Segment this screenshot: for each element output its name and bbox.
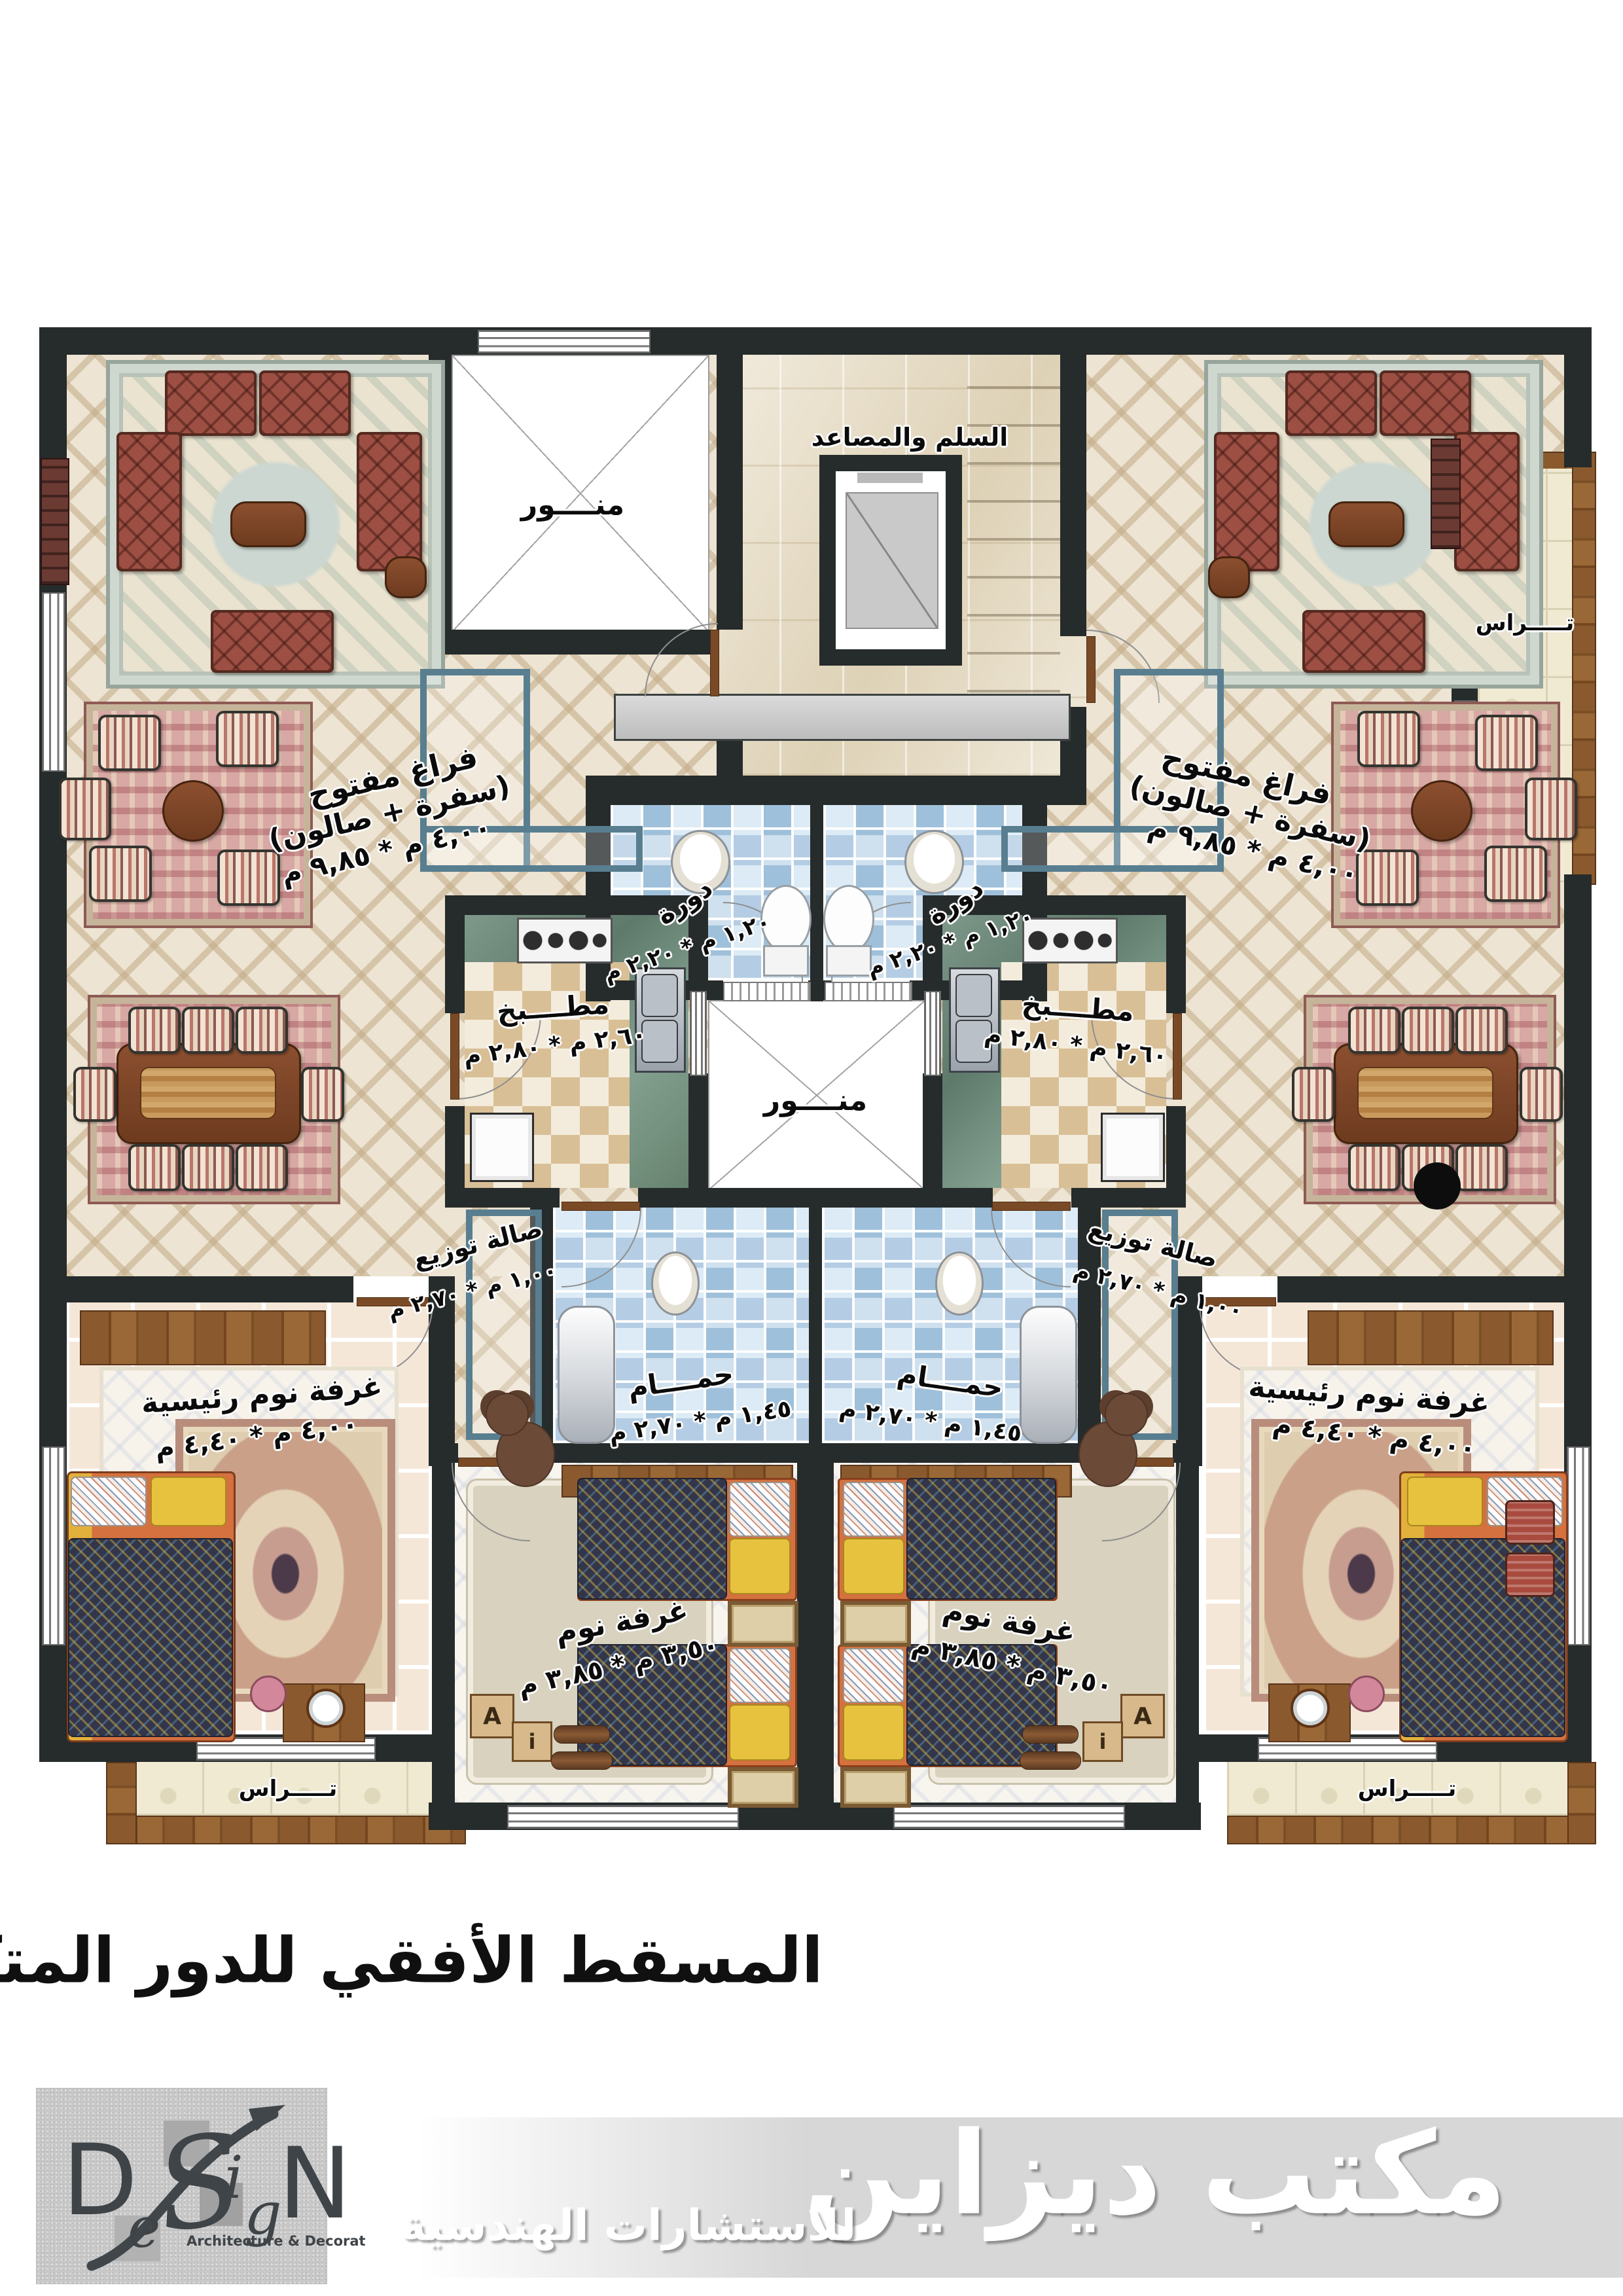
dining-chair xyxy=(301,1067,344,1122)
dining-chair xyxy=(182,1007,234,1054)
sofa xyxy=(211,610,334,673)
nightstand xyxy=(728,1767,798,1808)
terrace-bottom-left-wood-edge xyxy=(106,1762,137,1844)
sofa xyxy=(1214,432,1279,571)
wall-under-lightwell xyxy=(708,1188,923,1208)
side-table xyxy=(385,556,427,598)
door-leaf-entry-left xyxy=(710,630,719,696)
armchair xyxy=(89,846,152,902)
door-leaf-bath-right xyxy=(992,1202,1071,1211)
terrace-bottom-left-wood xyxy=(106,1816,466,1844)
quilt xyxy=(68,1538,233,1737)
wall-top xyxy=(39,327,1592,355)
label-terrace-bottom-right: تـــــراس xyxy=(1358,1778,1457,1800)
door-leaf-kitchen-right xyxy=(1173,1013,1182,1100)
wall-bath-divider xyxy=(809,1208,822,1445)
dining-chair xyxy=(128,1007,181,1054)
terrace-bottom-right-wood xyxy=(1227,1816,1596,1844)
dining-chair xyxy=(1455,1007,1508,1054)
terrace-bottom-right-wood-edge xyxy=(1567,1762,1596,1844)
wall-masterR-top xyxy=(1277,1276,1565,1302)
dining-chair xyxy=(1292,1067,1335,1122)
sofa xyxy=(116,432,182,571)
window-masterR-right xyxy=(1567,1446,1590,1645)
round-table xyxy=(162,780,224,842)
toy-block: i xyxy=(1082,1721,1123,1762)
dining-chair xyxy=(236,1007,288,1054)
nightstand xyxy=(728,1601,798,1647)
wall-kitchenR-left-b xyxy=(923,1073,942,1208)
armchair xyxy=(1484,846,1547,902)
dining-chair xyxy=(1455,1144,1508,1191)
armchair xyxy=(1525,778,1577,840)
stool xyxy=(250,1676,287,1712)
window-kitchenR-lightwell xyxy=(924,991,941,1076)
banner-office-sub: للاستشارات الهندسية xyxy=(401,2200,857,2251)
door-leaf-kitchen-left xyxy=(450,1013,459,1100)
sofa xyxy=(259,370,351,436)
armchair xyxy=(1357,711,1420,767)
pillow xyxy=(729,1482,791,1537)
toy-block: i xyxy=(512,1721,552,1762)
round-table xyxy=(1411,780,1472,842)
wardrobe-master-left xyxy=(80,1310,326,1365)
pillow-yellow xyxy=(1407,1477,1483,1526)
wall-above-wc xyxy=(586,776,1086,805)
nightstand xyxy=(840,1767,911,1808)
window-kidsL-bottom xyxy=(507,1805,739,1829)
teddy-bear-head xyxy=(1105,1393,1148,1436)
armchair xyxy=(1475,715,1538,771)
armchair xyxy=(1356,850,1419,906)
wall-core-left-a xyxy=(717,355,743,630)
wall-kitchenR-bottom-b xyxy=(1071,1188,1186,1208)
fridge-left xyxy=(470,1113,534,1182)
armchair xyxy=(217,850,280,906)
sofa xyxy=(1302,610,1425,673)
sofa xyxy=(165,370,257,436)
logo-box: D e S i g N Architecture & Decoration xyxy=(36,2088,327,2284)
sill-wc-right xyxy=(825,982,912,1001)
wall-right-upper xyxy=(1564,327,1592,467)
logo-letter-i: i xyxy=(224,2144,243,2212)
floor-plan-sheet: A i A i السلم والمصاعد منــــور منــــور… xyxy=(0,0,1623,2296)
dining-chair xyxy=(1402,1007,1454,1054)
logo-letter-e: e xyxy=(128,2196,160,2261)
pillow xyxy=(729,1648,791,1703)
dining-chair xyxy=(182,1144,234,1191)
door-leaf-bath-left xyxy=(562,1202,640,1211)
elevator-cab xyxy=(846,492,938,629)
dresser-mirror xyxy=(306,1689,346,1728)
wardrobe-master-right xyxy=(1308,1310,1554,1365)
stair-flight xyxy=(614,694,1071,741)
sofa xyxy=(1380,370,1471,436)
wall-kitchenL-left-a xyxy=(445,915,465,1013)
wall-core-right-a xyxy=(1060,355,1086,636)
logo-tagline: Architecture & Decoration xyxy=(187,2233,389,2249)
wall-kidsR-side xyxy=(1176,1463,1199,1803)
label-stairs: السلم والمصاعد xyxy=(811,425,1008,450)
bedroom-chair xyxy=(1505,1552,1555,1597)
pillow xyxy=(843,1648,904,1703)
wall-wc-divider xyxy=(810,805,823,1001)
dining-chair xyxy=(1348,1144,1400,1191)
sink-basin xyxy=(955,974,992,1017)
toy-log xyxy=(551,1751,613,1770)
elevator-door xyxy=(857,473,923,483)
teddy-bear-head xyxy=(486,1393,529,1436)
label-light-well-center: منــــور xyxy=(764,1086,867,1115)
sill-wc-left xyxy=(723,982,811,1001)
toy-block: A xyxy=(470,1694,514,1738)
banner-office-name: مكتب ديزاين xyxy=(803,2108,1507,2241)
stove-right xyxy=(1022,918,1118,963)
round-side-table xyxy=(1414,1162,1461,1210)
bedroom-chair xyxy=(1505,1500,1555,1545)
wall-kitchenL-right-b xyxy=(688,1073,708,1208)
armchair xyxy=(216,711,279,767)
nightstand xyxy=(840,1601,911,1647)
dresser-mirror xyxy=(1291,1689,1330,1728)
kid-quilt xyxy=(577,1478,727,1600)
toy-log xyxy=(554,1725,610,1744)
window-kitchenL-lightwell xyxy=(690,991,707,1076)
logo-letter-d: D xyxy=(62,2124,138,2238)
wc-right-toilet xyxy=(823,885,874,953)
pillow xyxy=(71,1477,147,1526)
coffee-table xyxy=(230,501,306,547)
dining-chair xyxy=(236,1144,288,1191)
wall-console-left xyxy=(41,458,69,585)
sofa xyxy=(1454,432,1520,571)
bathtub-left xyxy=(558,1306,615,1444)
label-terrace-bottom-left: تـــــراس xyxy=(239,1778,338,1800)
fridge-right xyxy=(1101,1113,1165,1182)
wall-kids-center xyxy=(797,1463,834,1803)
sink-basin xyxy=(641,974,678,1017)
pillow-yellow xyxy=(729,1538,791,1594)
wall-console-right xyxy=(1431,439,1461,549)
bathtub-right xyxy=(1020,1306,1077,1444)
stove-left xyxy=(517,918,613,963)
dining-table-top xyxy=(140,1067,276,1119)
toy-log xyxy=(1020,1751,1081,1770)
stool xyxy=(1348,1676,1385,1712)
dining-table-top xyxy=(1357,1067,1493,1119)
dining-chair xyxy=(1348,1007,1400,1054)
logo-letter-n: N xyxy=(278,2127,351,2241)
pillow-yellow xyxy=(843,1538,904,1594)
label-terrace-right: تـــــراس xyxy=(1476,612,1575,634)
dining-chair xyxy=(73,1067,116,1122)
bath-left-sink xyxy=(651,1251,700,1316)
window-kidsR-bottom xyxy=(893,1805,1125,1829)
armchair xyxy=(59,778,111,840)
pillow-yellow xyxy=(843,1704,904,1761)
toy-log xyxy=(1022,1725,1079,1744)
wall-kitchenL-bottom-a xyxy=(445,1188,560,1208)
wall-masterL-top xyxy=(65,1276,353,1302)
pillow xyxy=(843,1482,904,1537)
bath-right-sink xyxy=(935,1251,984,1316)
dining-chair xyxy=(128,1144,181,1191)
door-leaf-entry-right xyxy=(1086,636,1096,703)
wall-kitchenR-right-a xyxy=(1166,915,1186,1013)
side-table xyxy=(1208,556,1250,598)
dining-chair xyxy=(1520,1067,1563,1122)
sofa xyxy=(1285,370,1377,436)
armchair xyxy=(98,715,161,771)
coffee-table xyxy=(1329,501,1404,547)
pillow-yellow xyxy=(151,1477,226,1526)
sofa xyxy=(357,432,422,571)
window-master-left xyxy=(42,1446,65,1645)
toy-block: A xyxy=(1120,1694,1165,1738)
label-light-well-top: منــــور xyxy=(521,491,624,520)
label-kitchen-right: مطــــبخ xyxy=(1021,990,1135,1026)
window-lightwell-top xyxy=(478,330,651,353)
pillow-yellow xyxy=(729,1704,791,1761)
wall-kidsL-side xyxy=(432,1463,455,1803)
page-title: المسقط الأفقي للدور المتكرر xyxy=(0,1924,823,1998)
kid-quilt xyxy=(906,1478,1056,1600)
wc-left-toilet-tank xyxy=(763,945,809,977)
label-kitchen-left: مطــــبخ xyxy=(496,990,610,1026)
window-salon-left xyxy=(42,592,65,772)
